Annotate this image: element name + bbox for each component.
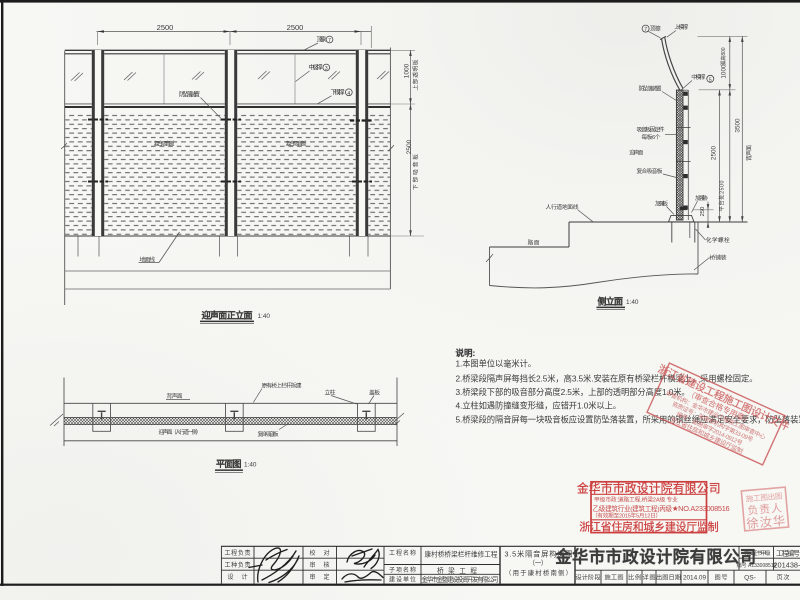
svg-text:地面线: 地面线 [140,255,156,263]
svg-text:审 核: 审 核 [310,561,330,569]
svg-text:侧立面: 侧立面 [598,296,624,307]
svg-text:施工图: 施工图 [605,574,624,582]
svg-text:2500: 2500 [406,139,413,154]
svg-text:1:40: 1:40 [244,462,257,469]
svg-text:比例: 比例 [628,574,641,582]
svg-text:中竖撑: 中竖撑 [309,64,323,72]
svg-text:平台处2500: 平台处2500 [717,181,725,212]
svg-text:出图日期: 出图日期 [656,574,681,582]
svg-text:迎声面正立面: 迎声面正立面 [202,310,253,321]
svg-text:甲级市政:道路工程,桥梁2A级 专业: 甲级市政:道路工程,桥梁2A级 专业 [594,495,678,503]
svg-text:图号: 图号 [715,575,728,582]
svg-text:每板6个: 每板6个 [642,133,661,141]
svg-text:迎声面: 迎声面 [629,149,643,157]
svg-text:乙级建筑行业(建筑工程)丙级★NO.A233008516: 乙级建筑行业(建筑工程)丙级★NO.A233008516 [593,504,730,513]
svg-text:路面: 路面 [528,239,540,247]
svg-text:工程负责: 工程负责 [225,549,251,557]
svg-text:详图: 详图 [643,574,656,582]
svg-text:审 定: 审 定 [310,573,330,581]
svg-text:7: 7 [328,38,331,44]
svg-text:立柱: 立柱 [325,389,336,397]
svg-text:QS-: QS- [744,575,756,582]
svg-text:等级证书甲级: 等级证书甲级 [744,549,771,557]
svg-text:工程名称: 工程名称 [389,549,416,557]
svg-text:工种负责: 工种负责 [225,561,251,569]
svg-text:迎声面（人行道一侧）: 迎声面（人行道一侧） [159,428,202,436]
svg-text:康村桥桥梁栏杆维修工程: 康村桥桥梁栏杆维修工程 [425,550,498,559]
svg-text:上部透明板: 上部透明板 [412,59,420,90]
svg-text:浙江省住房和城乡建设厅监制: 浙江省住房和城乡建设厅监制 [579,519,718,533]
svg-text:背声面: 背声面 [167,392,183,400]
svg-text:2500: 2500 [710,145,717,160]
svg-text:防坠落装置: 防坠落装置 [179,90,200,98]
svg-text:复合吸音板: 复合吸音板 [637,167,663,175]
svg-text:化学螺栓: 化学螺栓 [706,236,730,244]
svg-text:1000: 1000 [404,63,411,78]
svg-text:1:40: 1:40 [626,299,639,306]
svg-text:（用于康村桥南侧）: （用于康村桥南侧） [505,568,572,577]
svg-text:4: 4 [347,91,350,97]
svg-text:吸音板固定件: 吸音板固定件 [637,126,665,134]
svg-text:编号 A133008519: 编号 A133008519 [737,562,777,569]
svg-text:工程编号: 工程编号 [776,549,800,558]
svg-text:校 对: 校 对 [310,549,330,557]
svg-text:防坠落装置: 防坠落装置 [639,85,662,93]
svg-text:子项名称: 子项名称 [389,566,416,574]
svg-text:金华市市政设计院有限公司: 金华市市政设计院有限公司 [577,481,721,495]
svg-text:201438-1: 201438-1 [773,561,800,570]
svg-text:平面图: 平面图 [216,459,242,469]
svg-text:原有桥上栏杆拆建: 原有桥上栏杆拆建 [262,381,302,389]
svg-text:顶檩: 顶檩 [650,24,661,32]
svg-text:4.立柱如遇防撞缝变形缝，应错开1.0米以上。: 4.立柱如遇防撞缝变形缝，应错开1.0米以上。 [456,400,622,410]
svg-text:1:40: 1:40 [258,313,271,320]
svg-text:3500: 3500 [734,118,741,133]
svg-text:说明:: 说明: [456,348,476,358]
svg-text:3: 3 [325,66,328,72]
svg-text:弧高800: 弧高800 [720,47,727,65]
svg-text:复合吸音板: 复合吸音板 [154,139,175,147]
svg-text:金华市市政设计院有限公司: 金华市市政设计院有限公司 [554,547,756,566]
svg-text:250: 250 [700,207,706,217]
svg-text:（一）: （一） [529,559,548,567]
svg-text:设计阶段: 设计阶段 [576,574,601,582]
svg-text:2500: 2500 [287,23,304,32]
svg-text:上模撑: 上模撑 [674,23,688,31]
svg-text:1.本图单位以毫米计。: 1.本图单位以毫米计。 [456,358,537,368]
svg-text:7: 7 [644,27,647,33]
svg-text:复合吸音板: 复合吸音板 [286,139,307,147]
svg-text:金华市金整建设投资开发有限公司: 金华市金整建设投资开发有限公司 [422,575,499,584]
svg-text:顶檩: 顶檩 [317,36,327,44]
svg-text:下部吸音板: 下部吸音板 [411,154,419,190]
svg-text:5: 5 [709,77,712,83]
svg-text:1000: 1000 [720,64,727,79]
svg-text:页次: 页次 [777,574,790,582]
svg-text:建设单位: 建设单位 [389,575,416,583]
svg-text:2500: 2500 [157,23,174,32]
svg-text:背声面: 背声面 [745,145,753,161]
svg-text:中模撑: 中模撑 [691,73,705,81]
svg-text:设 计: 设 计 [228,573,248,581]
svg-text:加强板: 加强板 [655,199,668,207]
svg-text:加强胁: 加强胁 [695,194,708,202]
svg-text:下模撑: 下模撑 [331,88,345,96]
svg-text:复合吸音板: 复合吸音板 [258,430,279,438]
svg-text:桥 梁 工 程: 桥 梁 工 程 [437,566,477,575]
svg-text:盖板: 盖板 [369,389,380,397]
svg-text:桥铺装: 桥铺装 [710,253,727,261]
svg-text:人行道地面线: 人行道地面线 [546,203,579,211]
svg-text:2014.09: 2014.09 [683,575,707,582]
svg-text:（有效期至2015年5月12日）: （有效期至2015年5月12日） [592,512,661,520]
